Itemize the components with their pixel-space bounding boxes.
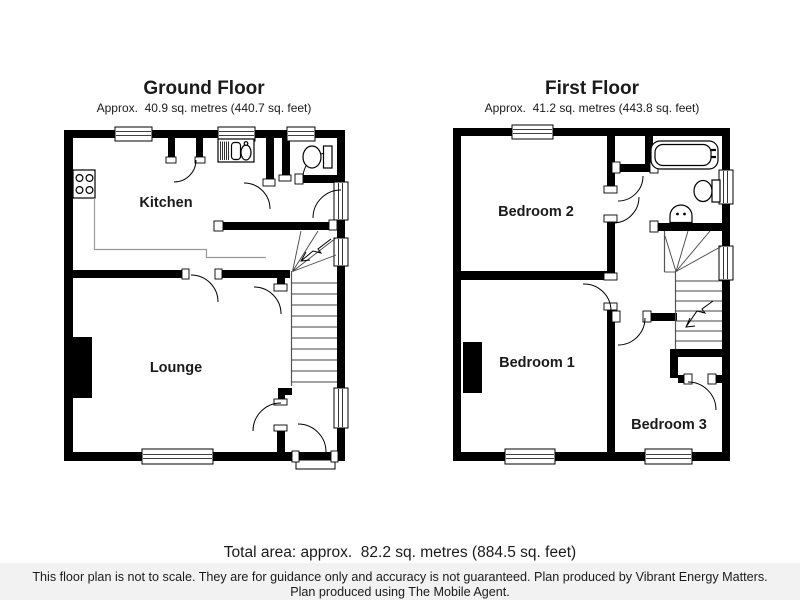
stairs-up [292, 231, 338, 386]
window [719, 246, 733, 280]
first-floor-plan: First Floor Approx. 41.2 sq. metres (443… [453, 78, 733, 464]
room-label-bedroom3: Bedroom 3 [631, 417, 707, 433]
front-door-step [296, 460, 335, 469]
sink-icon [218, 139, 254, 162]
floorplan-svg: Ground Floor Approx. 40.9 sq. metres (44… [0, 0, 800, 600]
door-arc [174, 160, 196, 182]
chimney-breast [463, 342, 482, 393]
toilet-icon [694, 180, 720, 202]
first-interior-walls [457, 136, 722, 452]
room-label-bedroom2: Bedroom 2 [498, 204, 574, 220]
back-door [334, 182, 348, 220]
basin-icon [670, 205, 692, 223]
hob-icon [73, 170, 95, 198]
toilet-icon [303, 146, 332, 168]
ground-floor-plan: Ground Floor Approx. 40.9 sq. metres (44… [64, 78, 348, 469]
window [334, 388, 348, 428]
window [115, 127, 152, 141]
window [512, 125, 553, 139]
bath-icon [651, 141, 718, 169]
window [719, 170, 733, 204]
window [334, 238, 348, 266]
total-area-label: Total area: approx. 82.2 sq. metres (884… [224, 544, 576, 561]
first-exterior-walls [453, 128, 730, 461]
first-door-arcs [583, 176, 716, 410]
disclaimer-line2: Plan produced using The Mobile Agent. [290, 585, 510, 599]
chimney-breast [73, 337, 92, 398]
door-arc [688, 382, 716, 410]
window [505, 449, 555, 464]
ground-door-arcs [174, 153, 341, 452]
window [287, 127, 315, 141]
floorplan-document: Ground Floor Approx. 40.9 sq. metres (44… [0, 0, 800, 600]
first-floor-title: First Floor [545, 78, 640, 99]
ground-floor-area: Approx. 40.9 sq. metres (440.7 sq. feet) [97, 101, 312, 115]
window [142, 449, 213, 464]
door-arc [191, 275, 218, 302]
door-arc [618, 318, 645, 345]
door-arc [298, 424, 326, 452]
door-arc [244, 183, 270, 209]
room-label-lounge: Lounge [150, 360, 202, 376]
footer: Total area: approx. 82.2 sq. metres (884… [0, 544, 800, 600]
ground-interior-walls [73, 138, 337, 452]
window [645, 449, 692, 464]
first-windows [505, 125, 733, 464]
stairs-up [665, 231, 723, 349]
stairs-direction-arrow [686, 301, 713, 327]
first-floor-area: Approx. 41.2 sq. metres (443.8 sq. feet) [485, 101, 700, 115]
disclaimer-line1: This floor plan is not to scale. They ar… [32, 570, 767, 584]
room-label-kitchen: Kitchen [139, 195, 192, 211]
ground-floor-title: Ground Floor [143, 78, 265, 99]
stairs-direction-arrow [301, 239, 331, 261]
room-label-bedroom1: Bedroom 1 [499, 355, 575, 371]
